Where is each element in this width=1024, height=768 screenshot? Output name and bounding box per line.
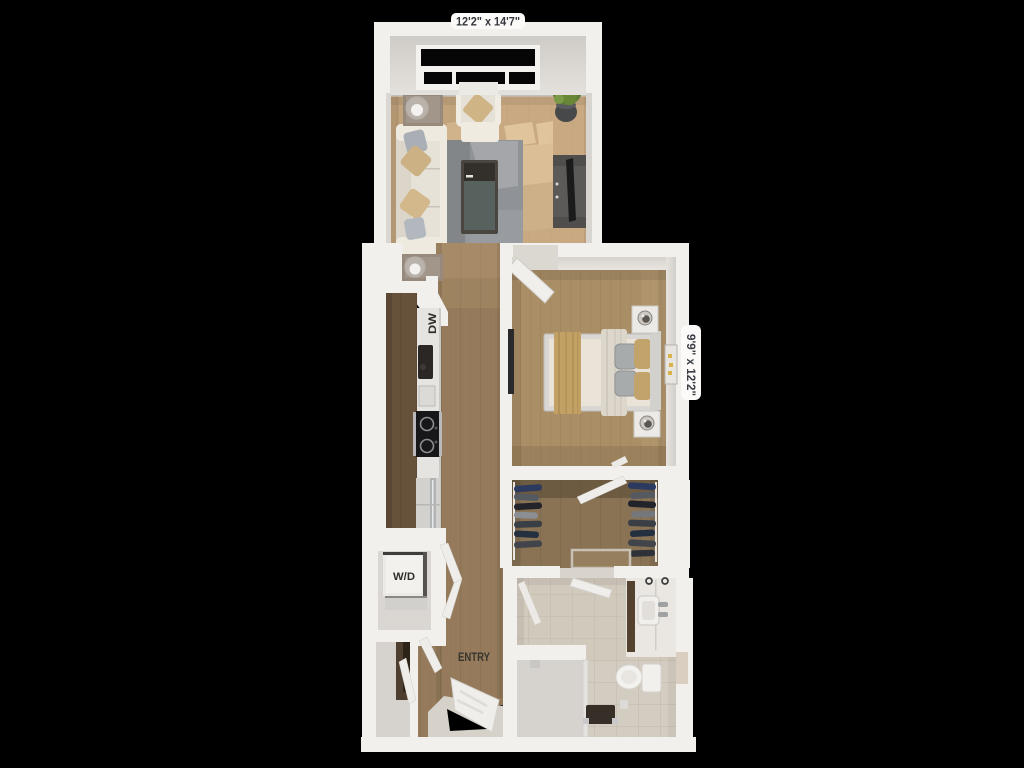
svg-text:W/D: W/D — [393, 571, 415, 583]
svg-text:12'2" x 14'7": 12'2" x 14'7" — [456, 15, 520, 29]
svg-text:ENTRY: ENTRY — [458, 650, 490, 664]
svg-text:9'9" x 12'2": 9'9" x 12'2" — [684, 334, 698, 396]
svg-text:DW: DW — [427, 312, 439, 334]
